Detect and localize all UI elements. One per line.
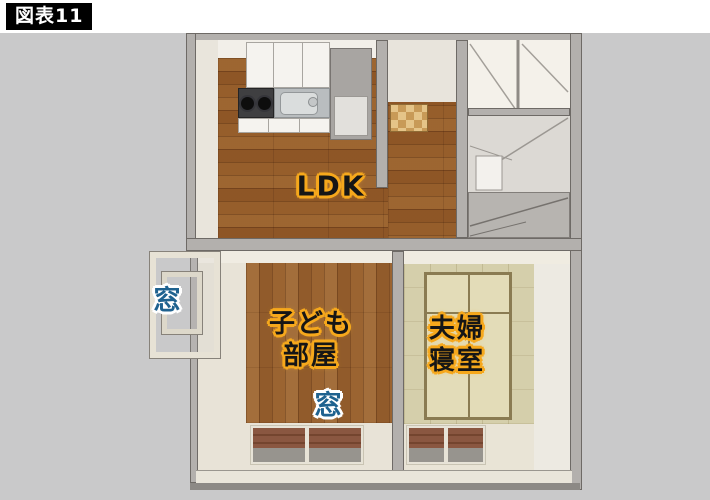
kitchen-partition-wall [376,40,388,188]
drawer [268,118,299,133]
wall-perspective-lines [468,40,570,113]
window-slats [409,428,444,448]
wall-perspective-lines [468,116,570,192]
window-slats [448,428,483,448]
outer-wall-west-upper [186,33,196,241]
outer-wall-east [570,33,582,490]
middle-wall [186,238,582,251]
window-slats [309,428,361,448]
kids-room-label: 子ども 部屋 [269,308,353,372]
kids-room-label-line1: 子ども [269,308,353,340]
drawer [238,118,268,133]
washroom-tile-floor [390,104,428,132]
bath-block-upper [468,40,570,113]
kitchen-upper-cabinets [246,42,330,88]
cabinet-door [246,42,273,88]
outer-wall-south-edge [190,483,580,490]
hallway-north-wall-face [388,40,456,102]
window-pane [309,428,361,462]
window-pane [448,428,483,462]
master-bedroom-label: 夫婦 寝室 [429,313,485,377]
bedroom-window [406,425,486,465]
ldk-label: LDK [297,170,366,203]
kids-room-label-line2: 部屋 [269,340,353,372]
kitchen-lower-drawers [238,118,330,133]
window-glass [409,448,444,462]
figure-label: 図表11 [6,3,92,30]
window-label-left: 窓 [154,279,181,318]
figure-canvas: 図表11 [0,0,710,500]
master-bedroom-label-line2: 寝室 [429,345,485,377]
cabinet-door [302,42,330,88]
window-label-south: 窓 [315,384,342,423]
cabinet-door [273,42,301,88]
window-pane [253,428,305,462]
kids-room-window [250,425,364,465]
faucet-icon [308,97,318,107]
storage-block [468,192,570,238]
stove-burner-icon [258,97,271,110]
hallway-east-wall [456,40,468,238]
window-glass [448,448,483,462]
stove [238,88,274,118]
outer-wall-south-face [196,470,572,483]
kitchen-counter [274,88,330,118]
bath-divider-wall [468,108,570,116]
window-glass [309,448,361,462]
wall-perspective-lines [468,192,570,238]
bathroom [468,116,570,192]
bedroom-east-wall-face [534,264,570,470]
kids-room-north-wall-face [198,251,392,263]
bedroom-divider-wall [392,251,404,483]
window-glass [253,448,305,462]
ldk-west-wall-face [196,40,218,238]
master-bedroom-label-line1: 夫婦 [429,313,485,345]
bedroom-north-wall-face [404,251,570,264]
stove-burner-icon [241,97,254,110]
window-slats [253,428,305,448]
kitchen-appliance [334,96,368,136]
drawer [299,118,330,133]
window-pane [409,428,444,462]
